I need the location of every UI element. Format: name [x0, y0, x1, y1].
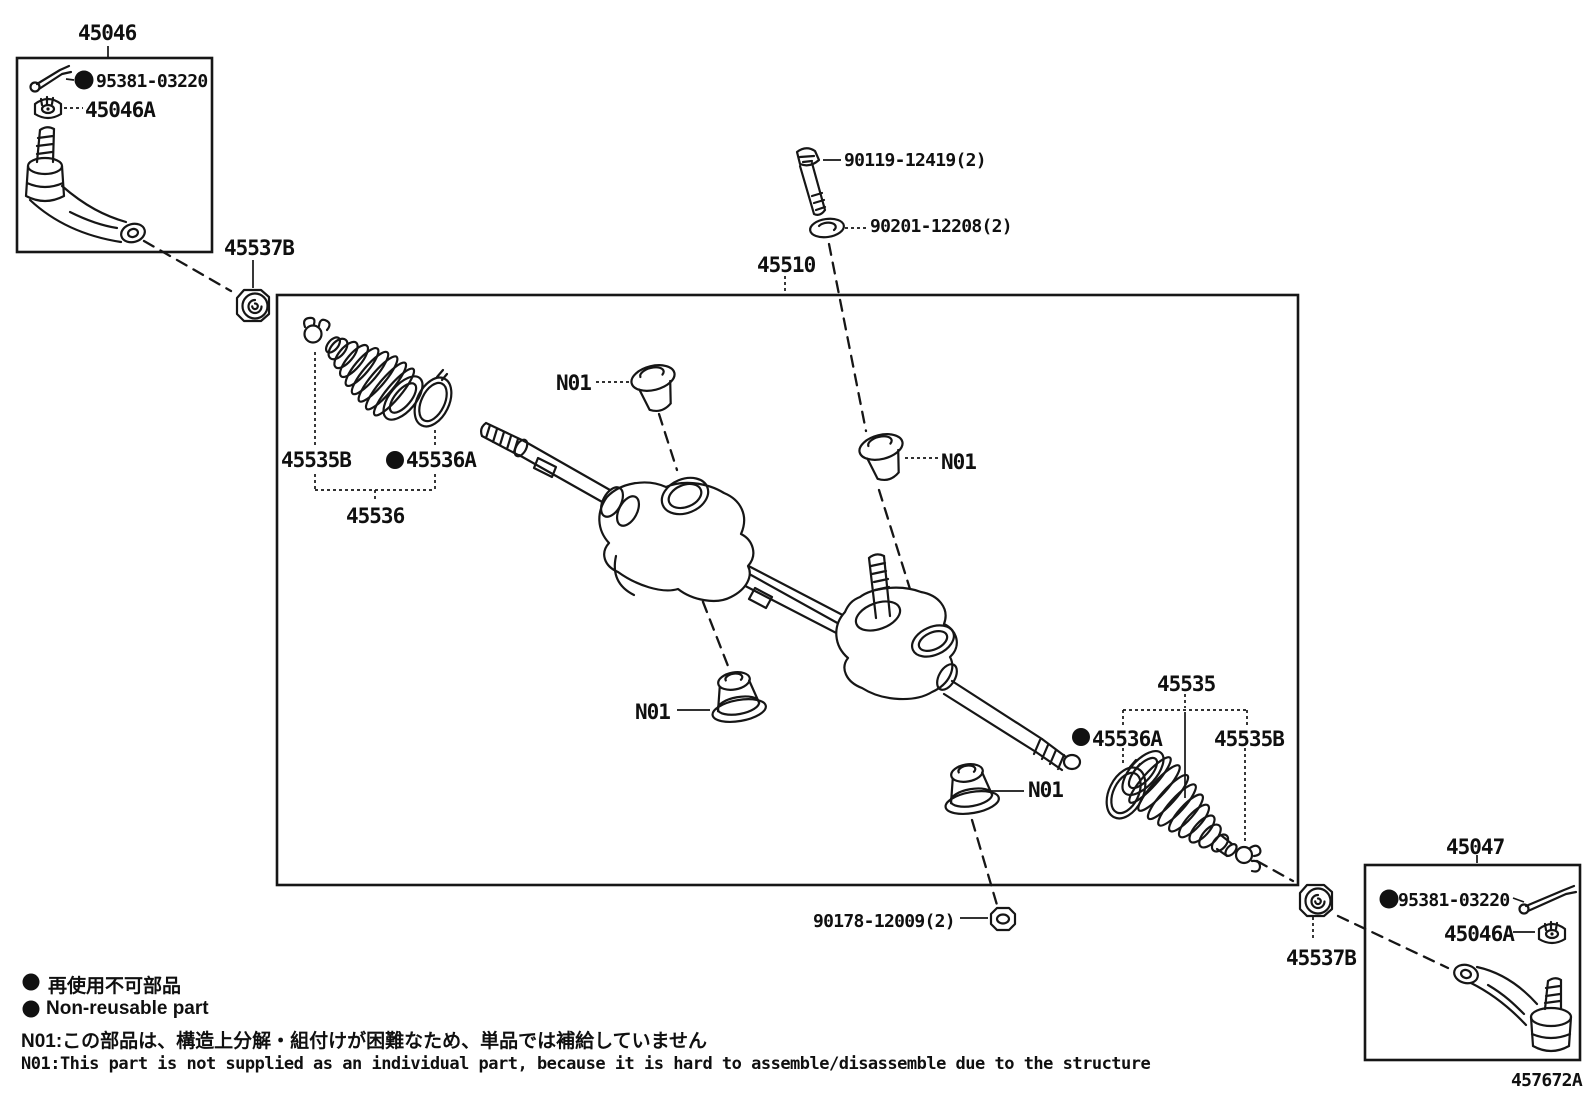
part-label-45536: 45536: [346, 504, 404, 528]
part-label-n01: N01: [556, 371, 591, 395]
grommet-drawing: [629, 361, 683, 416]
lock-nut-drawing: [1300, 885, 1332, 916]
tie-rod-end-left-drawing: [26, 127, 147, 245]
legend-nonreusable-jp: 再使用不可部品: [48, 971, 181, 998]
boot-ring-clamp-drawing: [407, 370, 459, 432]
grommet-drawing: [857, 430, 911, 485]
boot-clamp-small-drawing: [1236, 846, 1260, 872]
part-label-45535: 45535: [1157, 672, 1215, 696]
part-label-45535B: 45535B: [281, 448, 351, 472]
legend-nonreusable-en: Non-reusable part: [46, 998, 209, 1020]
part-label-45537B: 45537B: [224, 236, 294, 260]
part-label-45046: 45046: [78, 21, 136, 45]
part-label-n01: N01: [941, 450, 976, 474]
mount-bolt-drawing: [797, 148, 825, 215]
part-label-45535B: 45535B: [1214, 727, 1284, 751]
grommet-drawing: [706, 668, 768, 726]
part-label-95381: 95381-03220: [1398, 890, 1510, 911]
part-label-90178: 90178-12009(2): [813, 911, 955, 932]
castle-nut-drawing: [35, 97, 61, 118]
legend-note-en: N01:This part is not supplied as an indi…: [21, 1054, 1150, 1074]
part-label-45047: 45047: [1446, 835, 1504, 859]
cotter-pin-drawing: [1520, 886, 1577, 914]
diagram-line-art: [0, 0, 1592, 1099]
part-label-45046A: 45046A: [85, 98, 155, 122]
part-label-90119: 90119-12419(2): [844, 150, 986, 171]
washer-drawing: [809, 217, 845, 240]
part-label-45046A: 45046A: [1444, 922, 1514, 946]
part-label-95381: 95381-03220: [96, 71, 208, 92]
drawing-code: 457672A: [1511, 1070, 1582, 1091]
legend-note-jp: N01:この部品は、構造上分解・組付けが困難なため、単品では補給していません: [21, 1026, 707, 1053]
steering-rack-drawing: [481, 423, 1080, 770]
part-label-45537B: 45537B: [1286, 946, 1356, 970]
non-reusable-bullet: [23, 1001, 40, 1018]
part-label-45536A: 45536A: [1092, 727, 1162, 751]
non-reusable-dot: [1380, 890, 1399, 909]
lock-nut-drawing: [237, 290, 269, 321]
cotter-pin-drawing: [31, 66, 72, 92]
part-label-90201: 90201-12208(2): [870, 216, 1012, 237]
part-label-45536A: 45536A: [406, 448, 476, 472]
mount-nut-drawing: [991, 908, 1015, 930]
part-label-n01: N01: [1028, 778, 1063, 802]
castle-nut-drawing: [1539, 922, 1565, 943]
part-label-45510: 45510: [757, 253, 815, 277]
parts-diagram-page: 45046 95381-03220 45046A 45537B 45510 90…: [0, 0, 1592, 1099]
non-reusable-dot: [75, 71, 94, 90]
tie-rod-end-right-drawing: [1452, 962, 1571, 1051]
boot-ring-clamp-drawing: [1099, 760, 1153, 825]
boot-clamp-small-drawing: [304, 318, 329, 343]
grommet-drawing: [939, 760, 1001, 818]
leader-lines: [64, 46, 1535, 941]
part-label-n01: N01: [635, 700, 670, 724]
non-reusable-bullet: [23, 974, 40, 991]
steering-gear-box: [277, 295, 1298, 885]
non-reusable-dot: [386, 451, 404, 469]
non-reusable-dot: [1072, 728, 1090, 746]
